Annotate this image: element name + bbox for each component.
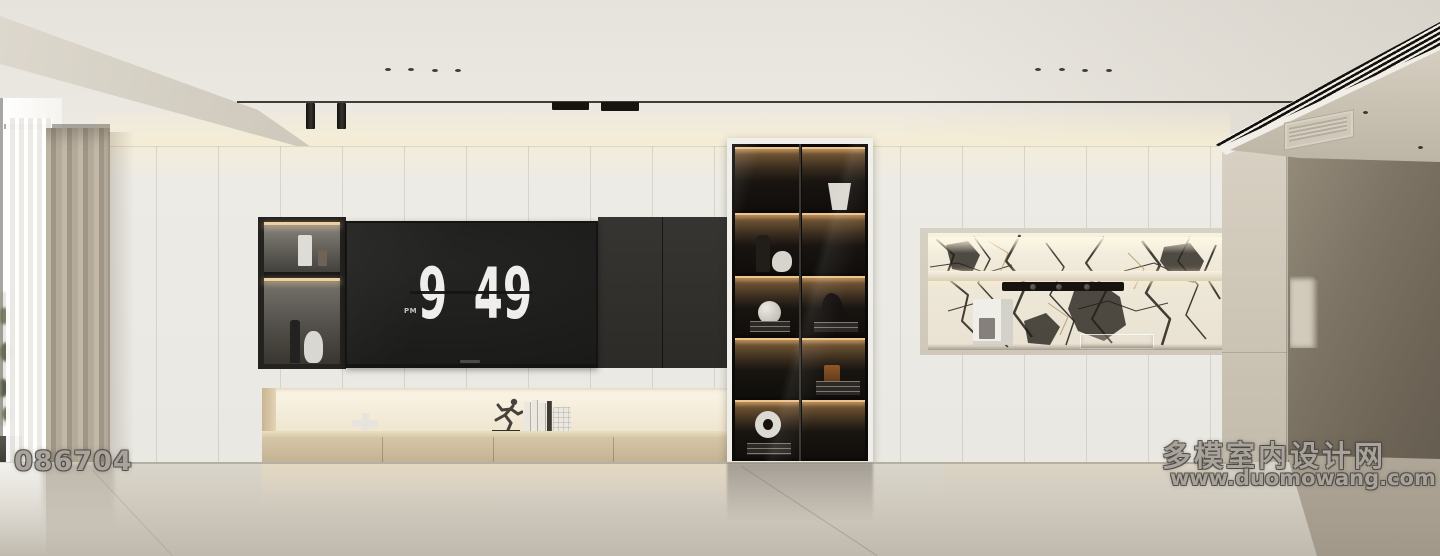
small-glass: [318, 250, 327, 266]
wall-mounted-tv: 949 PM: [345, 221, 598, 368]
niche-cell-bottom: [264, 278, 340, 364]
wall-ceiling-junction: [95, 146, 1230, 147]
tv-screen-reflection: [347, 223, 596, 364]
book: [524, 402, 531, 433]
wall-corner: [1286, 150, 1288, 463]
recessed-spotlight: [1082, 69, 1088, 72]
recessed-spotlight: [432, 69, 438, 72]
bench-door-seam: [613, 437, 614, 464]
dark-bottle: [290, 320, 300, 363]
pendant-spotlight: [337, 103, 346, 129]
floor-reflection-bench: [262, 464, 727, 506]
recessed-spotlight: [1035, 68, 1041, 71]
white-cylinder-vase: [298, 235, 312, 266]
tv-brand-logo: [460, 360, 480, 363]
pendant-spotlight: [306, 103, 315, 129]
cabinet-door-seam: [799, 144, 801, 461]
white-round-vase: [304, 331, 323, 363]
bench-door-seam: [493, 437, 494, 464]
marble-coffee-niche: [928, 233, 1222, 350]
window-frame: [0, 98, 3, 468]
niche-cell-top: [264, 222, 340, 272]
bench-door-seam: [382, 437, 383, 464]
recessed-spotlight: [1059, 68, 1065, 71]
display-niche-left: [258, 217, 346, 369]
corridor-front-wall: [1222, 146, 1287, 463]
vent-slats: [1289, 117, 1347, 142]
recessed-spotlight: [455, 69, 461, 72]
ceiling-light-track: [237, 101, 1392, 103]
recessed-spotlight: [1418, 146, 1423, 149]
white-books: [524, 400, 552, 433]
book: [532, 400, 538, 433]
interior-render-scene: 949 PM: [0, 0, 1440, 556]
book: [539, 403, 546, 433]
taupe-curtain: [46, 128, 110, 471]
wall-floor-junction: [95, 462, 1230, 464]
cross-sculpture: [352, 413, 378, 433]
recessed-spotlight: [408, 68, 414, 71]
runner-figurine: [489, 397, 523, 433]
wall-seam: [1222, 352, 1287, 353]
book: [547, 401, 552, 433]
coffee-machine: [973, 299, 1013, 345]
niche-led-strip: [264, 222, 340, 225]
image-id-watermark: 086704: [14, 446, 133, 477]
knob: [1084, 284, 1090, 290]
door-pull-recess: [1290, 276, 1318, 348]
knob: [1056, 284, 1062, 290]
niche-bottom-shadow: [928, 344, 1222, 350]
site-url-watermark: www.duomowang.com: [1170, 466, 1436, 490]
control-bar: [1002, 282, 1124, 291]
coffee-machine-window: [979, 318, 995, 339]
linear-track-light: [601, 102, 639, 111]
curtain-shadow: [108, 132, 134, 466]
recessed-spotlight: [385, 68, 391, 71]
bench-wood-cabinet: [262, 437, 727, 464]
cross-sculpture-arm: [352, 420, 378, 427]
knob: [1030, 284, 1036, 290]
linear-track-light: [552, 102, 589, 110]
lantern-vase: [553, 407, 571, 433]
recessed-spotlight: [1106, 69, 1112, 72]
panel-seam: [662, 217, 663, 368]
bench-niche-side: [262, 388, 276, 433]
niche-led-glow: [928, 237, 1222, 253]
niche-led-strip: [264, 278, 340, 281]
recessed-spotlight: [1363, 111, 1368, 114]
marble-shelf: [928, 271, 1222, 281]
